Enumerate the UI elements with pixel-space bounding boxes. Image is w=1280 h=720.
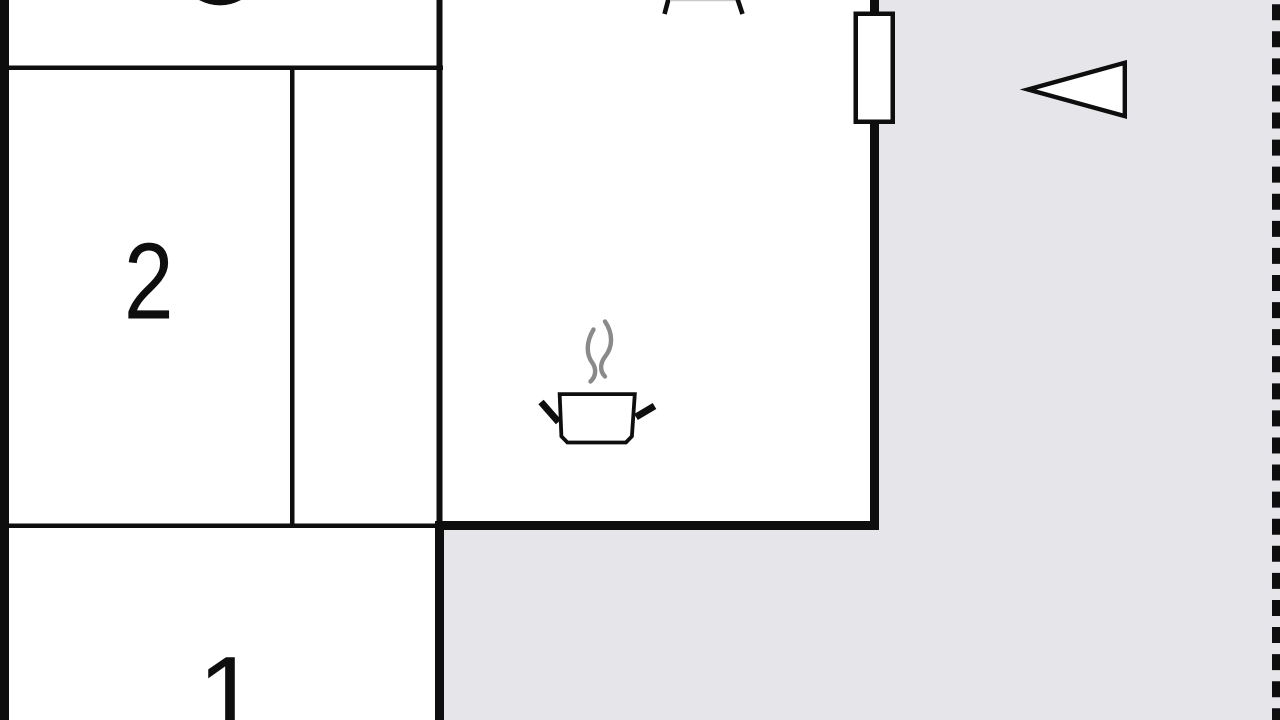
svg-text:2: 2 [124, 221, 174, 342]
svg-text:1: 1 [198, 634, 259, 720]
